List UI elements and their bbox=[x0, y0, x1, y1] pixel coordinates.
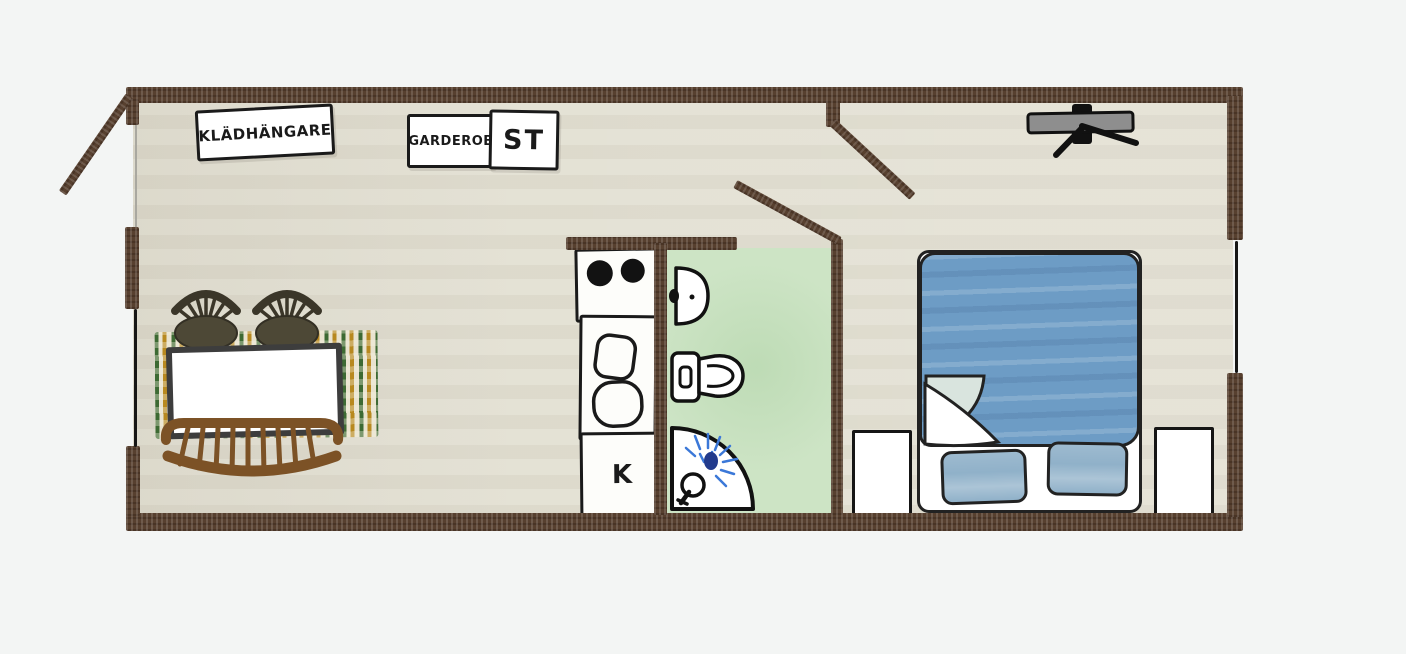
nightstand-left bbox=[852, 430, 912, 518]
floor-plan: KLÄDHÄNGARE GARDEROB ST K bbox=[0, 0, 1406, 654]
bathroom-sink bbox=[666, 264, 712, 328]
wall-right-lower bbox=[1227, 373, 1243, 517]
kitchen-label-text: K bbox=[612, 459, 632, 489]
dining-bench bbox=[160, 414, 344, 482]
coat-rack-label: KLÄDHÄNGARE bbox=[195, 103, 335, 161]
nightstand-right bbox=[1154, 427, 1214, 518]
kitchen-sink-counter bbox=[578, 315, 657, 442]
spray-center-icon bbox=[704, 452, 718, 470]
bed bbox=[917, 250, 1143, 514]
entry-door-opening bbox=[135, 121, 137, 227]
wardrobe-label-text: GARDEROB bbox=[408, 134, 493, 149]
wall-kitchen-top bbox=[566, 237, 737, 250]
duvet-fold bbox=[920, 370, 1012, 450]
wall-kitchen-bath-divider bbox=[654, 243, 667, 515]
window-left bbox=[134, 309, 137, 447]
shower-head-icon bbox=[682, 474, 704, 496]
wall-bottom bbox=[126, 513, 1243, 531]
coat-rack-label-text: KLÄDHÄNGARE bbox=[198, 120, 332, 145]
pillow-right bbox=[1047, 441, 1129, 496]
wardrobe-label: GARDEROB bbox=[407, 114, 495, 168]
wall-bathroom-right bbox=[831, 239, 843, 515]
faucet-icon bbox=[669, 289, 679, 303]
toilet-bowl bbox=[699, 356, 743, 397]
burner-icon bbox=[587, 260, 613, 286]
wall-left-middle bbox=[125, 227, 139, 309]
bench-rail bbox=[166, 423, 338, 440]
sink-basins-icon bbox=[581, 318, 654, 439]
entry-door-leaf bbox=[59, 93, 133, 195]
window-right bbox=[1235, 241, 1238, 373]
storage-label-text: ST bbox=[503, 124, 545, 156]
burner-icon bbox=[621, 259, 645, 283]
drain-icon bbox=[690, 295, 695, 300]
wall-right-upper bbox=[1227, 96, 1243, 240]
flush-button-icon bbox=[680, 367, 691, 387]
pillow-left bbox=[940, 449, 1028, 506]
wall-top bbox=[126, 87, 1243, 103]
corner-shower bbox=[664, 424, 756, 515]
storage-label: ST bbox=[488, 109, 559, 170]
wall-tv bbox=[1008, 98, 1158, 160]
dining-chair-right bbox=[251, 287, 323, 351]
bench-base bbox=[168, 456, 336, 471]
stove bbox=[574, 247, 660, 322]
toilet bbox=[669, 347, 747, 407]
wall-left-lower bbox=[126, 446, 140, 516]
kitchen-cabinet: K bbox=[580, 432, 665, 518]
dining-chair-left bbox=[170, 287, 242, 351]
